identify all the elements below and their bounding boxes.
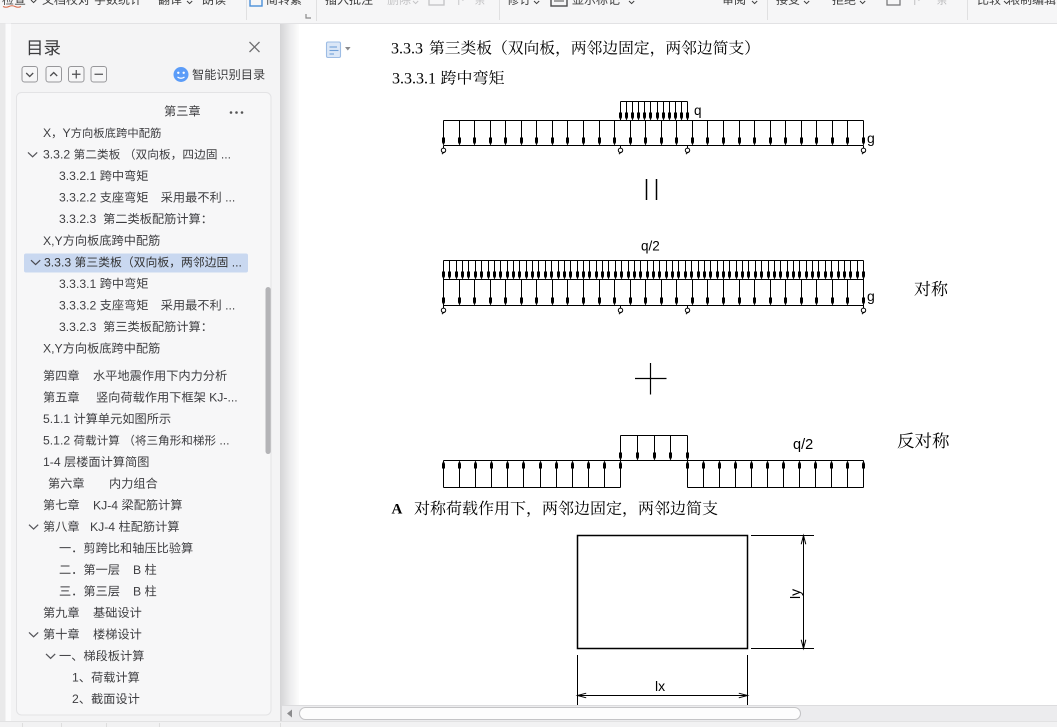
svg-text:KJ-4: KJ-4 [90, 520, 118, 534]
svg-text:...: ... [228, 255, 242, 269]
svg-text:g: g [867, 288, 875, 304]
svg-text:...: ... [222, 299, 236, 313]
svg-text:5.1.2: 5.1.2 [43, 434, 74, 448]
svg-text:q/2: q/2 [641, 239, 660, 254]
svg-text:3.3.2: 3.3.2 [43, 148, 74, 162]
svg-text:3.3.2.3: 3.3.2.3 [59, 212, 103, 226]
svg-text:KJ-...: KJ-... [206, 391, 238, 405]
svg-text:X,Y: X,Y [43, 342, 63, 356]
svg-text:ly: ly [787, 589, 803, 599]
svg-text:B: B [133, 585, 145, 599]
svg-text:3.3.2.1: 3.3.2.1 [59, 169, 100, 183]
svg-text:3.3.3: 3.3.3 [391, 41, 427, 58]
svg-text:Y: Y [63, 126, 71, 140]
svg-text:...: ... [216, 434, 230, 448]
svg-text:2: 2 [72, 692, 79, 706]
svg-text:lx: lx [655, 678, 665, 694]
svg-text:3.3.3: 3.3.3 [44, 255, 75, 269]
svg-text:KJ-4: KJ-4 [93, 498, 121, 512]
svg-text:X: X [43, 126, 51, 140]
svg-text:q/2: q/2 [793, 437, 813, 453]
svg-text:3.3.2.3: 3.3.2.3 [59, 320, 103, 334]
svg-text:1-4: 1-4 [43, 455, 64, 469]
svg-text:1: 1 [72, 671, 79, 685]
svg-text:X,Y: X,Y [43, 234, 63, 248]
svg-text:3.3.3.1: 3.3.3.1 [59, 277, 100, 291]
svg-text:q: q [694, 103, 702, 118]
svg-text:B: B [133, 563, 145, 577]
svg-text:...: ... [218, 148, 232, 162]
svg-text:g: g [867, 130, 875, 146]
svg-text:3.3.2.2: 3.3.2.2 [59, 191, 100, 205]
svg-text:3.3.3.1: 3.3.3.1 [392, 71, 440, 88]
svg-text:...: ... [222, 191, 236, 205]
svg-text:3.3.3.2: 3.3.3.2 [59, 299, 100, 313]
svg-text:A: A [392, 502, 406, 518]
svg-text:5.1.1: 5.1.1 [43, 412, 74, 426]
